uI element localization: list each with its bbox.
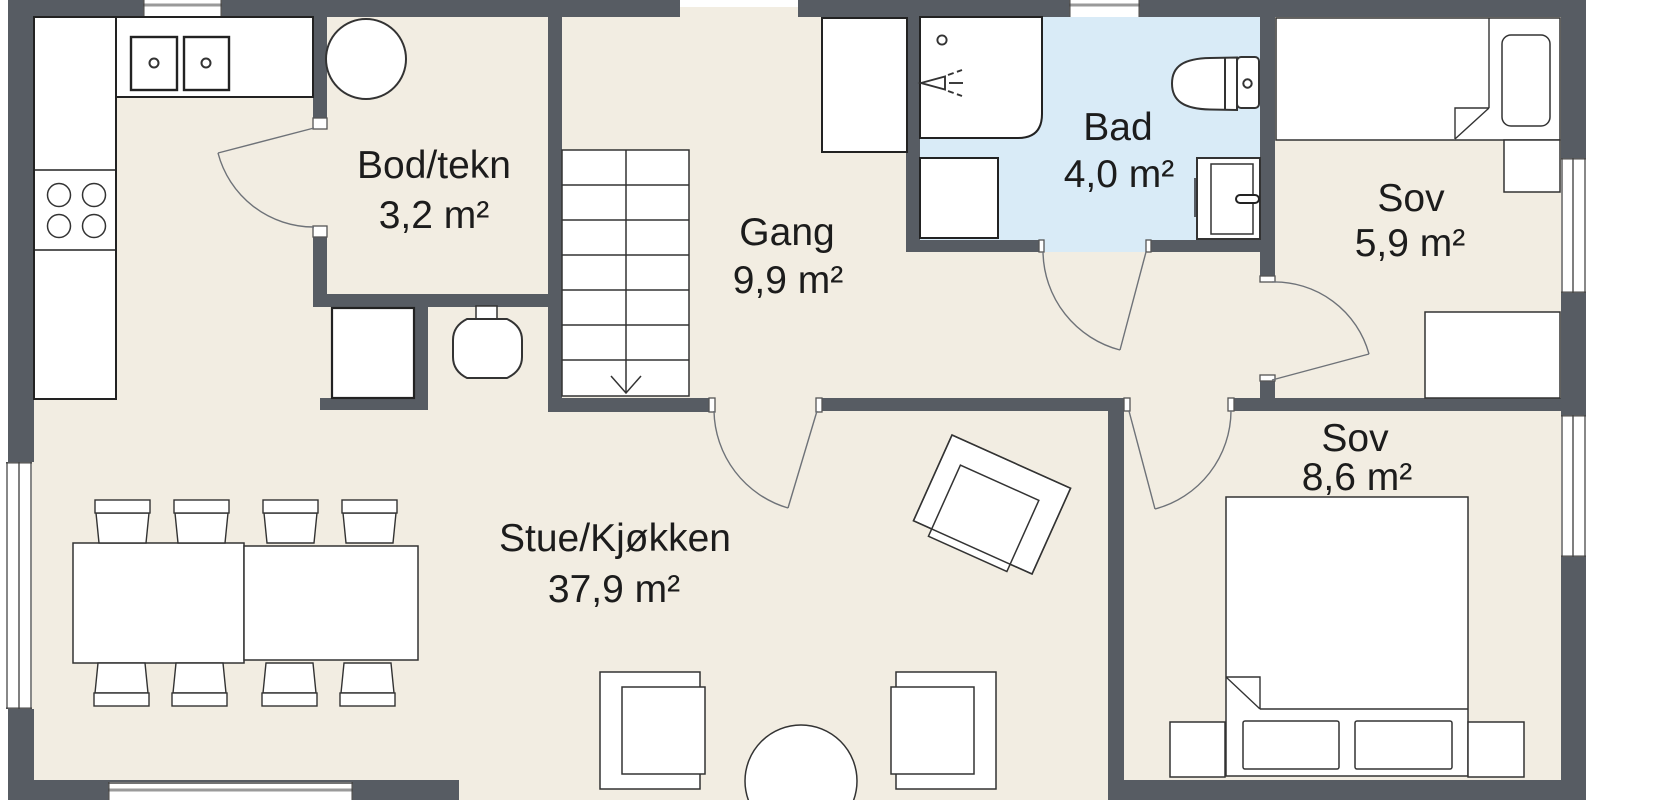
svg-text:Stue/Kjøkken: Stue/Kjøkken: [499, 517, 731, 560]
svg-text:Bod/tekn: Bod/tekn: [357, 144, 511, 187]
svg-text:Sov: Sov: [1377, 177, 1445, 220]
svg-text:3,2 m²: 3,2 m²: [379, 194, 490, 237]
svg-text:5,9 m²: 5,9 m²: [1355, 222, 1466, 265]
svg-text:4,0 m²: 4,0 m²: [1064, 153, 1175, 196]
svg-text:Gang: Gang: [739, 211, 834, 254]
svg-text:Sov: Sov: [1321, 417, 1389, 460]
svg-text:37,9 m²: 37,9 m²: [548, 568, 680, 611]
svg-text:Bad: Bad: [1083, 106, 1152, 149]
svg-text:8,6 m²: 8,6 m²: [1302, 456, 1413, 499]
svg-text:9,9 m²: 9,9 m²: [733, 259, 844, 302]
